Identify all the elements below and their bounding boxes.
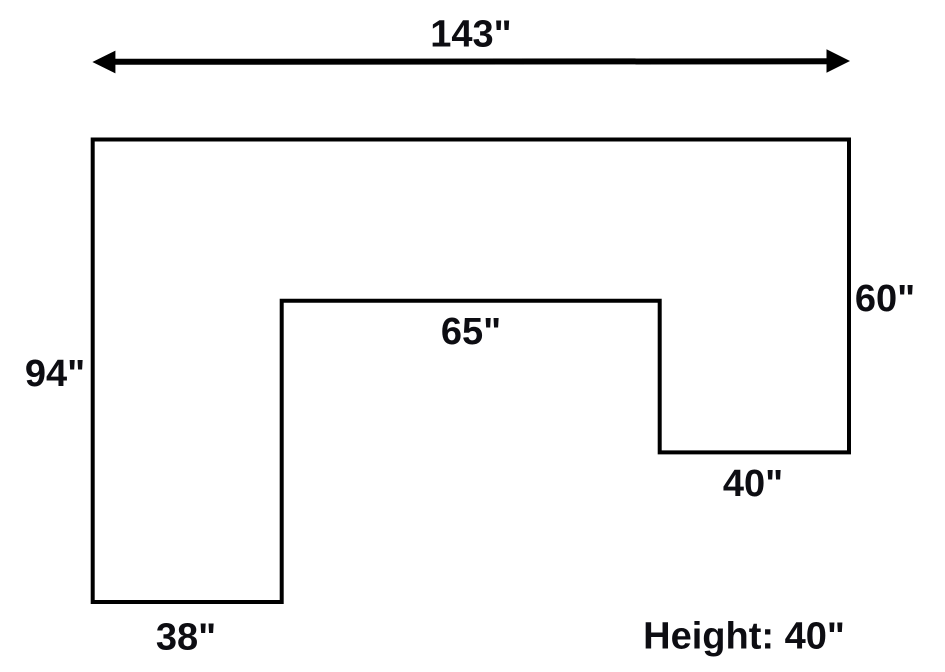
svg-text:Height: 40": Height: 40" bbox=[643, 616, 845, 658]
svg-text:40": 40" bbox=[723, 463, 783, 505]
svg-text:38": 38" bbox=[156, 617, 216, 659]
svg-text:60": 60" bbox=[855, 278, 915, 320]
svg-text:143": 143" bbox=[430, 14, 511, 56]
svg-text:65": 65" bbox=[441, 311, 501, 353]
svg-text:94": 94" bbox=[25, 353, 85, 395]
